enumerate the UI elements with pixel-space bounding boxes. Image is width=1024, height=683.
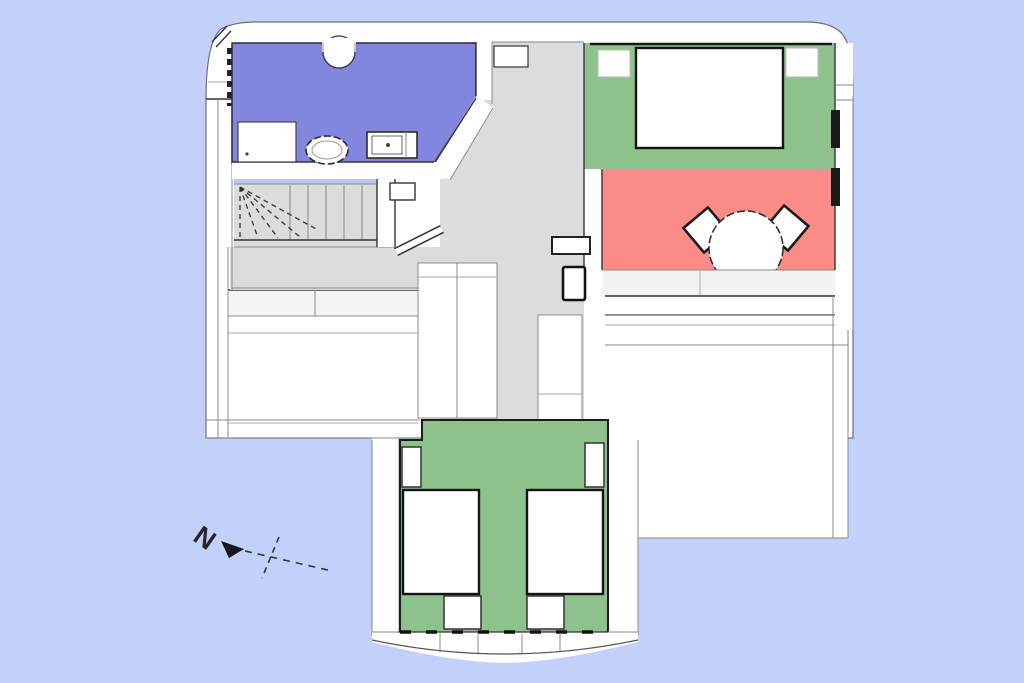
- bathroom: [232, 36, 494, 180]
- hall-niche: [494, 46, 528, 67]
- vanity-icon: [367, 132, 417, 158]
- sink-icon: [322, 36, 356, 68]
- duct-icon: [563, 267, 585, 300]
- duct-box: [390, 183, 415, 200]
- roof-area-right: [602, 270, 848, 538]
- bedroom-bottom-wing: [372, 420, 638, 663]
- double-bed: [636, 48, 783, 148]
- foot-table: [444, 596, 481, 629]
- bedroom-top: [584, 43, 835, 169]
- terrace: [584, 169, 835, 285]
- radiator-icon: [552, 237, 590, 254]
- window-icon: [831, 168, 840, 206]
- wardrobe-right: [538, 315, 582, 420]
- side-window: [402, 447, 421, 487]
- window-icon: [831, 110, 840, 148]
- wardrobe-left: [418, 263, 497, 418]
- side-window: [585, 443, 604, 487]
- single-bed-left: [403, 490, 479, 594]
- foot-table: [527, 596, 564, 629]
- shower-icon: [238, 122, 296, 162]
- floorplan-image: N: [0, 0, 1024, 683]
- nightstand-right: [786, 48, 818, 77]
- nightstand-left: [598, 50, 630, 77]
- single-bed-right: [527, 490, 603, 594]
